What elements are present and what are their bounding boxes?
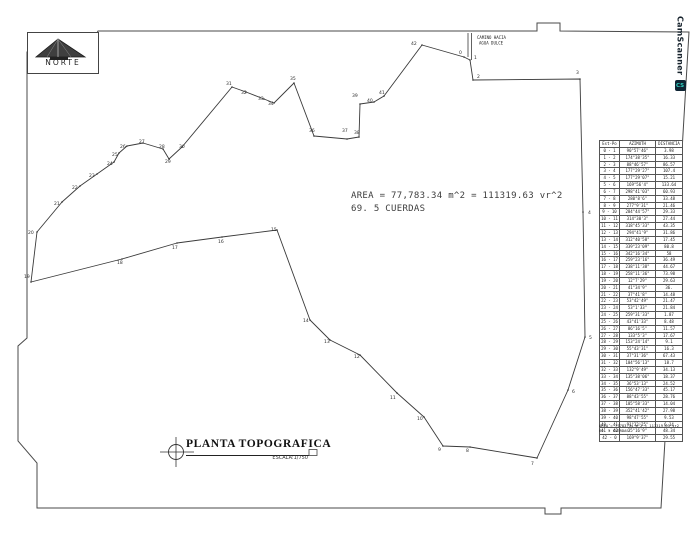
north-box: NORTE bbox=[27, 32, 99, 74]
table-cell: 86.57 bbox=[656, 161, 683, 168]
table-cell: 34.13 bbox=[656, 366, 683, 373]
table-footer-line2: 69. 5 CUERDAS bbox=[599, 428, 699, 433]
table-cell: 29.55 bbox=[656, 435, 683, 442]
vertex-dot bbox=[359, 103, 361, 105]
vertex-dot bbox=[567, 389, 569, 391]
vertex-label: 0 bbox=[459, 50, 462, 56]
table-row: 7 - 8280°8'6"33.48 bbox=[600, 195, 683, 202]
table-row: 22 - 2353°42'49"21.47 bbox=[600, 298, 683, 305]
table-cell: 39 - 40 bbox=[600, 414, 620, 421]
vertex-dot bbox=[346, 138, 348, 140]
table-cell: 22 - 23 bbox=[600, 298, 620, 305]
table-row: 30 - 3137°31'36"67.43 bbox=[600, 353, 683, 360]
table-row: 31 - 32104°56'13"18.7 bbox=[600, 360, 683, 367]
vertex-label: 36 bbox=[309, 128, 315, 134]
table-cell: 90°57'46" bbox=[620, 147, 656, 154]
table-cell: 29 - 30 bbox=[600, 346, 620, 353]
vertex-dot bbox=[472, 79, 474, 81]
table-cell: 259°31'33" bbox=[620, 312, 656, 319]
vertex-label: 2 bbox=[477, 74, 480, 80]
vertex-dot bbox=[118, 152, 120, 154]
parcel-boundary bbox=[31, 45, 585, 458]
table-cell: 14.48 bbox=[656, 291, 683, 298]
vertex-label: 41 bbox=[379, 90, 385, 96]
table-row: 32 - 33132°9'49"34.13 bbox=[600, 366, 683, 373]
vertex-dot bbox=[313, 135, 315, 137]
table-cell: 27.98 bbox=[656, 407, 683, 414]
table-cell: 19 - 20 bbox=[600, 277, 620, 284]
table-cell: 12°7'29" bbox=[620, 277, 656, 284]
table-cell: 21.46 bbox=[656, 202, 683, 209]
vertex-label: 17 bbox=[172, 245, 178, 251]
table-cell: 16 - 17 bbox=[600, 257, 620, 264]
table-row: 33 - 34135°38'06"18.37 bbox=[600, 373, 683, 380]
vertex-label: 20 bbox=[28, 230, 34, 236]
table-cell: 258°11'36" bbox=[620, 271, 656, 278]
table-cell: 153°24'14" bbox=[620, 339, 656, 346]
table-cell: 133.64 bbox=[656, 182, 683, 189]
table-cell: 9.53 bbox=[656, 414, 683, 421]
table-cell: 17.67 bbox=[656, 332, 683, 339]
table-cell: 41°34'9" bbox=[620, 284, 656, 291]
table-row: 34 - 3536°53'13"24.52 bbox=[600, 380, 683, 387]
vertex-label: 34 bbox=[268, 101, 274, 107]
vertex-label: 40 bbox=[367, 98, 373, 104]
table-cell: 36. bbox=[656, 284, 683, 291]
table-cell: 107.4 bbox=[656, 168, 683, 175]
table-cell: 53°42'49" bbox=[620, 298, 656, 305]
table-cell: 21.84 bbox=[656, 305, 683, 312]
table-footer: AREA = 77783.34 m^2 = 111319.63 vr2 69. … bbox=[599, 423, 699, 433]
table-cell: 177°29'27" bbox=[620, 168, 656, 175]
table-cell: 0 - 1 bbox=[600, 147, 620, 154]
table-cell: 24 - 25 bbox=[600, 312, 620, 319]
vertex-label: 29 bbox=[165, 159, 171, 165]
table-cell: 23 - 24 bbox=[600, 305, 620, 312]
vertex-label: 14 bbox=[303, 318, 309, 324]
table-cell: 238°11'38" bbox=[620, 264, 656, 271]
vertex-label: 22 bbox=[72, 185, 78, 191]
table-cell: 88°43'55" bbox=[620, 394, 656, 401]
table-cell: 37°31'36" bbox=[620, 353, 656, 360]
table-cell: 294°41'9" bbox=[620, 229, 656, 236]
table-cell: 177°29'07" bbox=[620, 175, 656, 182]
table-header-cell: Est-Po bbox=[600, 141, 620, 148]
table-cell: 1.87 bbox=[656, 312, 683, 319]
table-cell: 3.98 bbox=[656, 147, 683, 154]
table-cell: 29.33 bbox=[656, 209, 683, 216]
vertex-dot bbox=[421, 44, 423, 46]
table-cell: 339°23'09" bbox=[620, 243, 656, 250]
table-cell: 3 - 4 bbox=[600, 168, 620, 175]
table-cell: 5 - 6 bbox=[600, 182, 620, 189]
vertex-label: 4 bbox=[588, 210, 591, 216]
table-cell: 32 - 33 bbox=[600, 366, 620, 373]
vertex-dot bbox=[469, 446, 471, 448]
table-cell: 21 - 22 bbox=[600, 291, 620, 298]
table-cell: 12 - 13 bbox=[600, 229, 620, 236]
table-cell: 35 - 36 bbox=[600, 387, 620, 394]
vertex-label: 19 bbox=[24, 274, 30, 280]
table-row: 14 - 15339°23'09"80.8 bbox=[600, 243, 683, 250]
table-cell: 259°23'16" bbox=[620, 257, 656, 264]
vertex-label: 37 bbox=[342, 128, 348, 134]
table-cell: 80.8 bbox=[656, 243, 683, 250]
vertex-label: 11 bbox=[390, 395, 396, 401]
vertex-label: 25 bbox=[112, 152, 118, 158]
vertex-dot bbox=[536, 457, 538, 459]
table-row: 6 - 7298°41'03"60.93 bbox=[600, 188, 683, 195]
vertex-label: 42 bbox=[411, 41, 417, 47]
table-cell: 169°9'37" bbox=[620, 435, 656, 442]
table-cell: 88°46'57" bbox=[620, 161, 656, 168]
table-cell: 37°41'8" bbox=[620, 291, 656, 298]
road-label-line1: CAMINO HACIA bbox=[477, 35, 506, 40]
table-cell: 58 bbox=[656, 250, 683, 257]
table-cell: 29.63 bbox=[656, 277, 683, 284]
table-cell: 132°9'49" bbox=[620, 366, 656, 373]
table-row: 13 - 14312°40'58"17.45 bbox=[600, 236, 683, 243]
table-cell: 33.48 bbox=[656, 195, 683, 202]
table-cell: 28.76 bbox=[656, 394, 683, 401]
table-cell: 25 - 26 bbox=[600, 318, 620, 325]
table-header-cell: AZIMUTH bbox=[620, 141, 656, 148]
table-cell: 17.45 bbox=[656, 236, 683, 243]
vertex-dot bbox=[176, 242, 178, 244]
table-row: 35 - 36156°47'33"45.17 bbox=[600, 387, 683, 394]
vertex-dot bbox=[126, 145, 128, 147]
table-row: 28 - 29153°24'14"9.1 bbox=[600, 339, 683, 346]
vertex-label: 5 bbox=[589, 335, 592, 341]
vertex-dot bbox=[61, 201, 63, 203]
table-cell: 55°43'31" bbox=[620, 346, 656, 353]
table-row: 8 - 9277°9'31"21.46 bbox=[600, 202, 683, 209]
table-row: 2 - 388°46'57"86.57 bbox=[600, 161, 683, 168]
vertex-dot bbox=[373, 101, 375, 103]
table-cell: 104°56'13" bbox=[620, 360, 656, 367]
vertex-dot bbox=[121, 258, 123, 260]
table-cell: 1 - 2 bbox=[600, 154, 620, 161]
vertex-dot bbox=[579, 78, 581, 80]
vertex-label-layer: 0123456789101112131415161718192021222324… bbox=[24, 41, 592, 467]
table-cell: 312°40'58" bbox=[620, 236, 656, 243]
area-note: AREA = 77,783.34 m^2 = 111319.63 vr^2 69… bbox=[351, 190, 563, 215]
table-row: 3 - 4177°29'27"107.4 bbox=[600, 168, 683, 175]
table-cell: 28 - 29 bbox=[600, 339, 620, 346]
table-cell: 4 - 5 bbox=[600, 175, 620, 182]
vertex-dot bbox=[113, 161, 115, 163]
vertex-label: 15 bbox=[271, 227, 277, 233]
vertex-label: 16 bbox=[218, 239, 224, 245]
vertex-label: 8 bbox=[466, 448, 469, 454]
table-cell: 17 - 18 bbox=[600, 264, 620, 271]
table-cell: 27 - 28 bbox=[600, 332, 620, 339]
table-cell: 16.33 bbox=[656, 154, 683, 161]
table-row: 27 - 28133°5'3"17.67 bbox=[600, 332, 683, 339]
vertex-label: 30 bbox=[179, 144, 185, 150]
table-cell: 98°47'55" bbox=[620, 414, 656, 421]
table-cell: 13 - 14 bbox=[600, 236, 620, 243]
table-cell: 43°41'33" bbox=[620, 318, 656, 325]
table-cell: 9 - 10 bbox=[600, 209, 620, 216]
table-row: 12 - 13294°41'9"31.86 bbox=[600, 229, 683, 236]
table-cell: 11 - 12 bbox=[600, 223, 620, 230]
vertex-label: 10 bbox=[417, 416, 423, 422]
vertex-label: 27 bbox=[139, 139, 145, 145]
table-row: 15 - 16342°16'34"58 bbox=[600, 250, 683, 257]
table-cell: 18 - 19 bbox=[600, 271, 620, 278]
table-cell: 277°9'31" bbox=[620, 202, 656, 209]
table-cell: 31 - 32 bbox=[600, 360, 620, 367]
vertex-label: 35 bbox=[290, 76, 296, 82]
area-note-line2: 69. 5 CUERDAS bbox=[351, 203, 563, 216]
camscanner-watermark: CamScanner CS bbox=[669, 16, 691, 94]
table-cell: 352°41'42" bbox=[620, 407, 656, 414]
vertex-dot bbox=[30, 281, 32, 283]
table-cell: 33 - 34 bbox=[600, 373, 620, 380]
table-row: 36 - 3788°43'55"28.76 bbox=[600, 394, 683, 401]
vertex-label: 31 bbox=[226, 81, 232, 87]
vertex-label: 1 bbox=[474, 55, 477, 61]
table-row: 9 - 10284°44'57"29.33 bbox=[600, 209, 683, 216]
table-cell: 16.3 bbox=[656, 346, 683, 353]
vertex-dot bbox=[358, 136, 360, 138]
table-cell: 2 - 3 bbox=[600, 161, 620, 168]
table-cell: 14.04 bbox=[656, 401, 683, 408]
title-underline-end-box bbox=[309, 450, 317, 456]
table-cell: 133°5'3" bbox=[620, 332, 656, 339]
table-cell: 60.93 bbox=[656, 188, 683, 195]
table-row: 37 - 38105°58'33"14.04 bbox=[600, 401, 683, 408]
table-cell: 174°38'35" bbox=[620, 154, 656, 161]
table-cell: 38 - 39 bbox=[600, 407, 620, 414]
table-cell: 67.43 bbox=[656, 353, 683, 360]
table-cell: 44.67 bbox=[656, 264, 683, 271]
table-cell: 10 - 11 bbox=[600, 216, 620, 223]
plan-title: PLANTA TOPOGRAFICA bbox=[186, 438, 331, 450]
table-cell: 43.35 bbox=[656, 223, 683, 230]
scale-label: ESCALA:1/750 bbox=[232, 455, 308, 461]
vertex-label: 13 bbox=[324, 339, 330, 345]
road-label-line2: AGUA DULCE bbox=[479, 41, 504, 46]
table-cell: 24.52 bbox=[656, 380, 683, 387]
vertex-label: 24 bbox=[107, 161, 113, 167]
vertex-label: 7 bbox=[531, 461, 534, 467]
scanned-survey-plan: { "north": { "label": "NORTE" }, "road":… bbox=[0, 0, 700, 541]
table-row: 20 - 2141°34'9"36. bbox=[600, 284, 683, 291]
table-row: 23 - 2453°1'33"21.84 bbox=[600, 305, 683, 312]
table-cell: 36°53'13" bbox=[620, 380, 656, 387]
table-row: 11 - 12318°45'33"43.35 bbox=[600, 223, 683, 230]
table-row: 4 - 5177°29'07"15.21 bbox=[600, 175, 683, 182]
table-cell: 135°38'06" bbox=[620, 373, 656, 380]
vertex-dot bbox=[309, 319, 311, 321]
table-cell: 11.57 bbox=[656, 325, 683, 332]
vertex-dot bbox=[469, 59, 471, 61]
table-header-row: Est-PoAZIMUTHDISTANCIA bbox=[600, 141, 683, 148]
vertex-dot bbox=[584, 336, 586, 338]
table-row: 21 - 2237°41'8"14.48 bbox=[600, 291, 683, 298]
vertex-dot bbox=[79, 185, 81, 187]
table-cell: 342°16'34" bbox=[620, 250, 656, 257]
vertex-label: 9 bbox=[438, 447, 441, 453]
area-note-line1: AREA = 77,783.34 m^2 = 111319.63 vr^2 bbox=[351, 190, 563, 203]
table-cell: 36.49 bbox=[656, 257, 683, 264]
table-cell: 86°16'5" bbox=[620, 325, 656, 332]
vertex-label: 18 bbox=[117, 260, 123, 266]
table-cell: 34 - 35 bbox=[600, 380, 620, 387]
table-row: 18 - 19258°11'36"73.98 bbox=[600, 271, 683, 278]
vertex-dot bbox=[96, 173, 98, 175]
survey-table: Est-PoAZIMUTHDISTANCIA 0 - 190°57'46"3.9… bbox=[599, 140, 683, 442]
table-row: 5 - 6169°56'4"133.64 bbox=[600, 182, 683, 189]
vertex-dot bbox=[221, 236, 223, 238]
vertex-label: 23 bbox=[89, 173, 95, 179]
table-row: 26 - 2786°16'5"11.57 bbox=[600, 325, 683, 332]
table-cell: 7 - 8 bbox=[600, 195, 620, 202]
table-cell: 14 - 15 bbox=[600, 243, 620, 250]
table-cell: 37 - 38 bbox=[600, 401, 620, 408]
table-cell: 280°8'6" bbox=[620, 195, 656, 202]
table-cell: 73.98 bbox=[656, 271, 683, 278]
table-cell: 105°58'33" bbox=[620, 401, 656, 408]
table-row: 38 - 39352°41'42"27.98 bbox=[600, 407, 683, 414]
survey-drawing-canvas: 0123456789101112131415161718192021222324… bbox=[0, 0, 700, 541]
table-row: 10 - 11314°30'3"27.44 bbox=[600, 216, 683, 223]
table-cell: 42 - 0 bbox=[600, 435, 620, 442]
table-cell: 53°1'33" bbox=[620, 305, 656, 312]
vertex-dot bbox=[463, 56, 465, 58]
table-cell: 314°30'3" bbox=[620, 216, 656, 223]
table-cell: 20 - 21 bbox=[600, 284, 620, 291]
table-cell: 31.86 bbox=[656, 229, 683, 236]
table-cell: 27.44 bbox=[656, 216, 683, 223]
table-cell: 169°56'4" bbox=[620, 182, 656, 189]
table-cell: 156°47'33" bbox=[620, 387, 656, 394]
table-header-cell: DISTANCIA bbox=[656, 141, 683, 148]
table-row: 19 - 2012°7'29"29.63 bbox=[600, 277, 683, 284]
table-cell: 6 - 7 bbox=[600, 188, 620, 195]
table-row: 25 - 2643°41'33"8.48 bbox=[600, 318, 683, 325]
table-cell: 15 - 16 bbox=[600, 250, 620, 257]
table-cell: 9.1 bbox=[656, 339, 683, 346]
vertex-label: 32 bbox=[241, 90, 247, 96]
vertex-label: 28 bbox=[159, 144, 165, 150]
table-row: 17 - 18238°11'38"44.67 bbox=[600, 264, 683, 271]
table-cell: 284°44'57" bbox=[620, 209, 656, 216]
vertex-label: 12 bbox=[354, 354, 360, 360]
vertex-dot bbox=[582, 211, 584, 213]
table-row: 39 - 4098°47'55"9.53 bbox=[600, 414, 683, 421]
table-cell: 18.7 bbox=[656, 360, 683, 367]
vertex-dot bbox=[442, 445, 444, 447]
table-cell: 8 - 9 bbox=[600, 202, 620, 209]
table-cell: 45.17 bbox=[656, 387, 683, 394]
table-cell: 30 - 31 bbox=[600, 353, 620, 360]
vertex-dot bbox=[396, 392, 398, 394]
camscanner-label: CamScanner bbox=[676, 16, 685, 78]
table-cell: 318°45'33" bbox=[620, 223, 656, 230]
table-cell: 8.48 bbox=[656, 318, 683, 325]
table-cell: 15.21 bbox=[656, 175, 683, 182]
north-label: NORTE bbox=[28, 58, 98, 67]
vertex-dot bbox=[36, 231, 38, 233]
vertex-label: 3 bbox=[576, 70, 579, 76]
table-row: 24 - 25259°31'33"1.87 bbox=[600, 312, 683, 319]
vertex-label: 33 bbox=[258, 96, 264, 102]
table-cell: 298°41'03" bbox=[620, 188, 656, 195]
table-cell: 36 - 37 bbox=[600, 394, 620, 401]
vertex-dot bbox=[423, 416, 425, 418]
table-row: 42 - 0169°9'37"29.55 bbox=[600, 435, 683, 442]
table-row: 29 - 3055°43'31"16.3 bbox=[600, 346, 683, 353]
camscanner-icon: CS bbox=[675, 80, 686, 91]
vertex-label: 6 bbox=[572, 389, 575, 395]
table-cell: 18.37 bbox=[656, 373, 683, 380]
table-row: 0 - 190°57'46"3.98 bbox=[600, 147, 683, 154]
vertex-label: 38 bbox=[354, 130, 360, 136]
vertex-label: 39 bbox=[352, 93, 358, 99]
vertex-label: 26 bbox=[120, 144, 126, 150]
table-row: 16 - 17259°23'16"36.49 bbox=[600, 257, 683, 264]
table-row: 1 - 2174°38'35"16.33 bbox=[600, 154, 683, 161]
vertex-label: 21 bbox=[54, 201, 60, 207]
table-cell: 26 - 27 bbox=[600, 325, 620, 332]
table-cell: 21.47 bbox=[656, 298, 683, 305]
vertex-dot bbox=[293, 82, 295, 84]
